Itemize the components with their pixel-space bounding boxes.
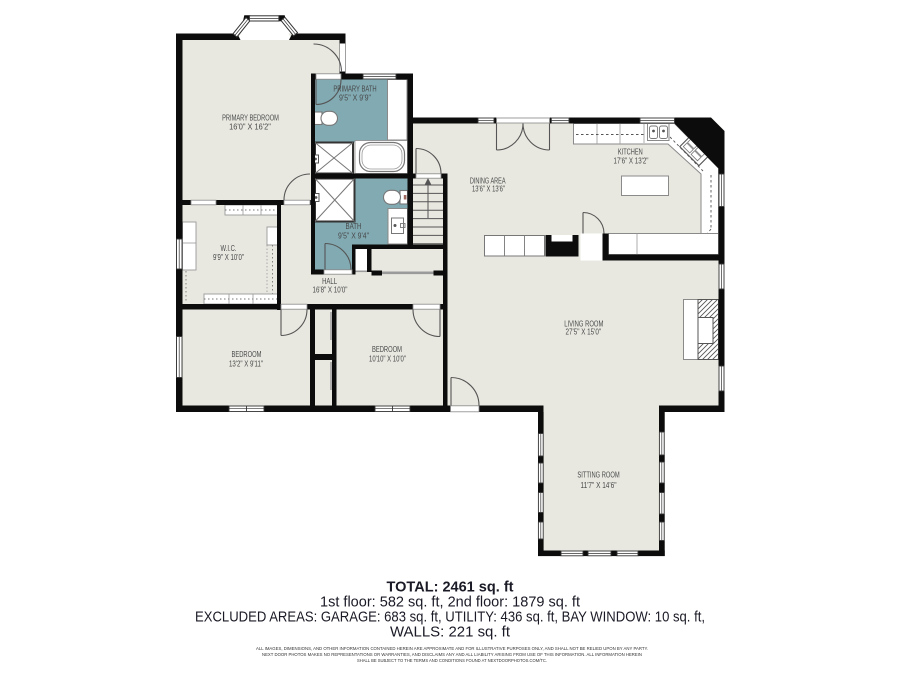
svg-text:PRIMARY BEDROOM: PRIMARY BEDROOM — [222, 114, 279, 123]
svg-text:ALL IMAGES, DIMENSIONS, AND OT: ALL IMAGES, DIMENSIONS, AND OTHER INFORM… — [256, 646, 648, 651]
svg-text:SITTING ROOM: SITTING ROOM — [577, 470, 620, 479]
svg-text:9'5" X 9'9": 9'5" X 9'9" — [339, 94, 371, 103]
svg-text:9'5" X 9'4": 9'5" X 9'4" — [338, 232, 369, 241]
svg-text:PRIMARY BATH: PRIMARY BATH — [333, 85, 376, 94]
svg-text:SHALL BE SUBJECT TO THE TERMS: SHALL BE SUBJECT TO THE TERMS AND CONDIT… — [357, 658, 547, 663]
svg-text:11'7" X 14'6": 11'7" X 14'6" — [581, 481, 617, 490]
svg-text:16'0" X 16'2": 16'0" X 16'2" — [229, 123, 271, 132]
svg-text:13'6" X 13'6": 13'6" X 13'6" — [472, 185, 505, 194]
svg-text:W.I.C.: W.I.C. — [221, 244, 237, 253]
svg-text:WALLS: 221 sq. ft: WALLS: 221 sq. ft — [390, 624, 511, 641]
svg-text:17'6" X 13'2": 17'6" X 13'2" — [614, 157, 649, 166]
svg-text:BEDROOM: BEDROOM — [372, 345, 402, 354]
svg-text:16'8" X 10'0": 16'8" X 10'0" — [313, 285, 348, 294]
svg-text:13'2" X 9'11": 13'2" X 9'11" — [229, 359, 263, 368]
svg-text:9'9" X 10'0": 9'9" X 10'0" — [213, 253, 244, 262]
svg-text:BATH: BATH — [346, 222, 362, 231]
svg-text:10'10" X 10'0": 10'10" X 10'0" — [369, 354, 406, 363]
svg-text:NEXT DOOR PHOTOS MAKES NO REPR: NEXT DOOR PHOTOS MAKES NO REPRESENTATION… — [262, 652, 642, 657]
svg-text:BEDROOM: BEDROOM — [232, 350, 262, 359]
svg-text:27'5" X 15'0": 27'5" X 15'0" — [566, 328, 602, 337]
svg-text:KITCHEN: KITCHEN — [618, 147, 643, 156]
